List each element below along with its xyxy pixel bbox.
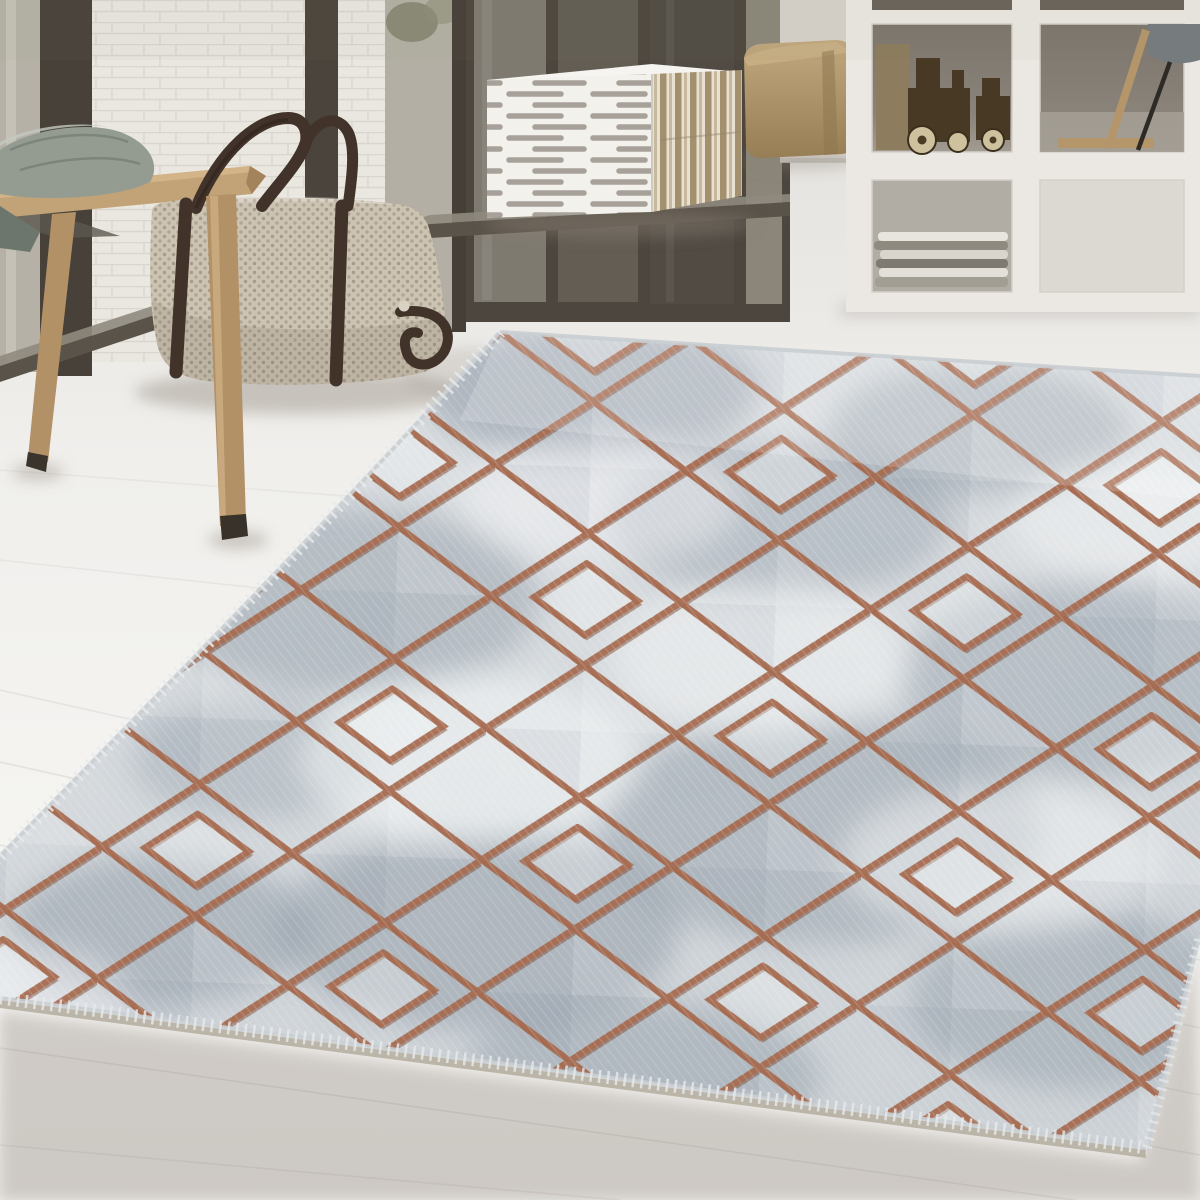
vignette-top — [0, 0, 1200, 60]
product-photo — [0, 0, 1200, 1200]
toy-chimney — [952, 70, 964, 90]
scene-canvas — [0, 0, 1200, 1200]
zipper-pull — [399, 301, 410, 312]
cube-front-face — [487, 74, 652, 218]
shelf-cell-empty — [1040, 180, 1184, 292]
toy-train-cab — [916, 58, 940, 92]
magazine-stack — [874, 232, 1008, 287]
wheel-hub — [918, 136, 927, 145]
wheel-hub2 — [990, 137, 997, 144]
bench-front-leg-tip — [220, 514, 248, 540]
toy-camera-top — [982, 78, 1000, 96]
striped-cube-ottoman — [487, 64, 742, 218]
cube-side-face — [652, 70, 742, 212]
